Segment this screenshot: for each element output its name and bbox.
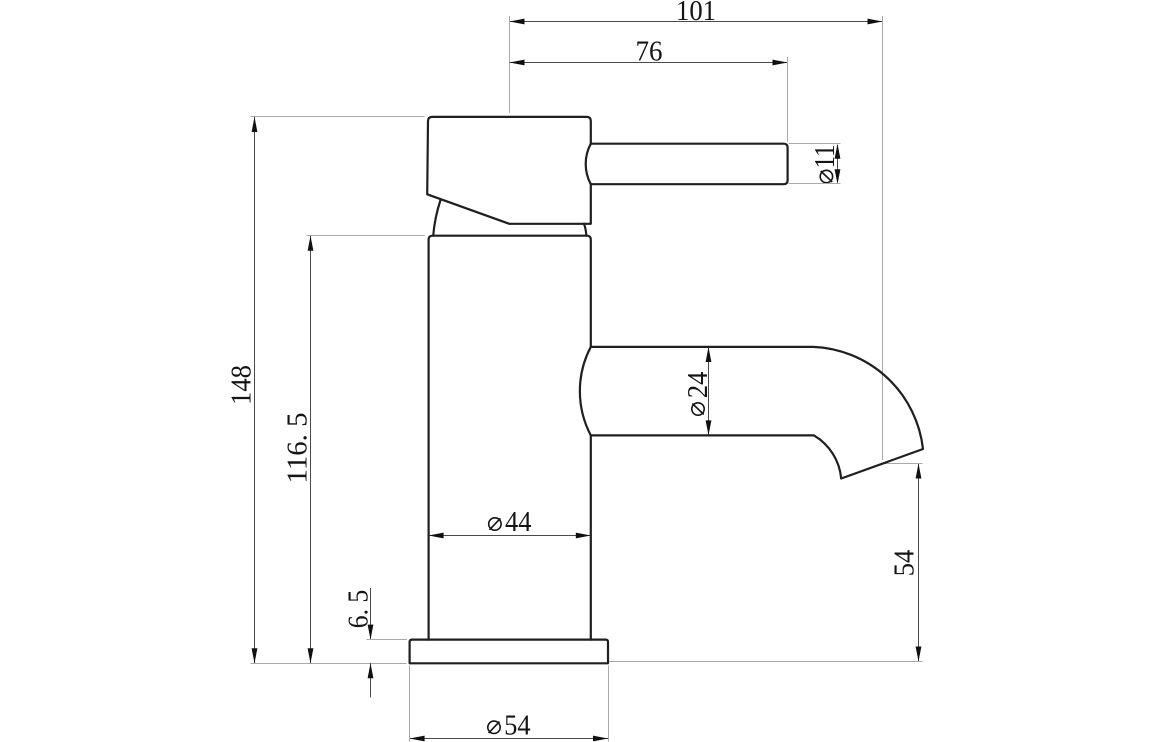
svg-text:11: 11 [810,145,841,169]
svg-text:101: 101 [676,0,716,27]
svg-text:54: 54 [504,710,531,741]
svg-text:76: 76 [636,36,663,67]
svg-text:54: 54 [890,550,921,577]
svg-text:44: 44 [505,507,532,538]
svg-text:116. 5: 116. 5 [283,413,314,484]
svg-text:6. 5: 6. 5 [344,590,375,629]
svg-text:24: 24 [683,372,714,399]
svg-text:148: 148 [227,365,258,405]
